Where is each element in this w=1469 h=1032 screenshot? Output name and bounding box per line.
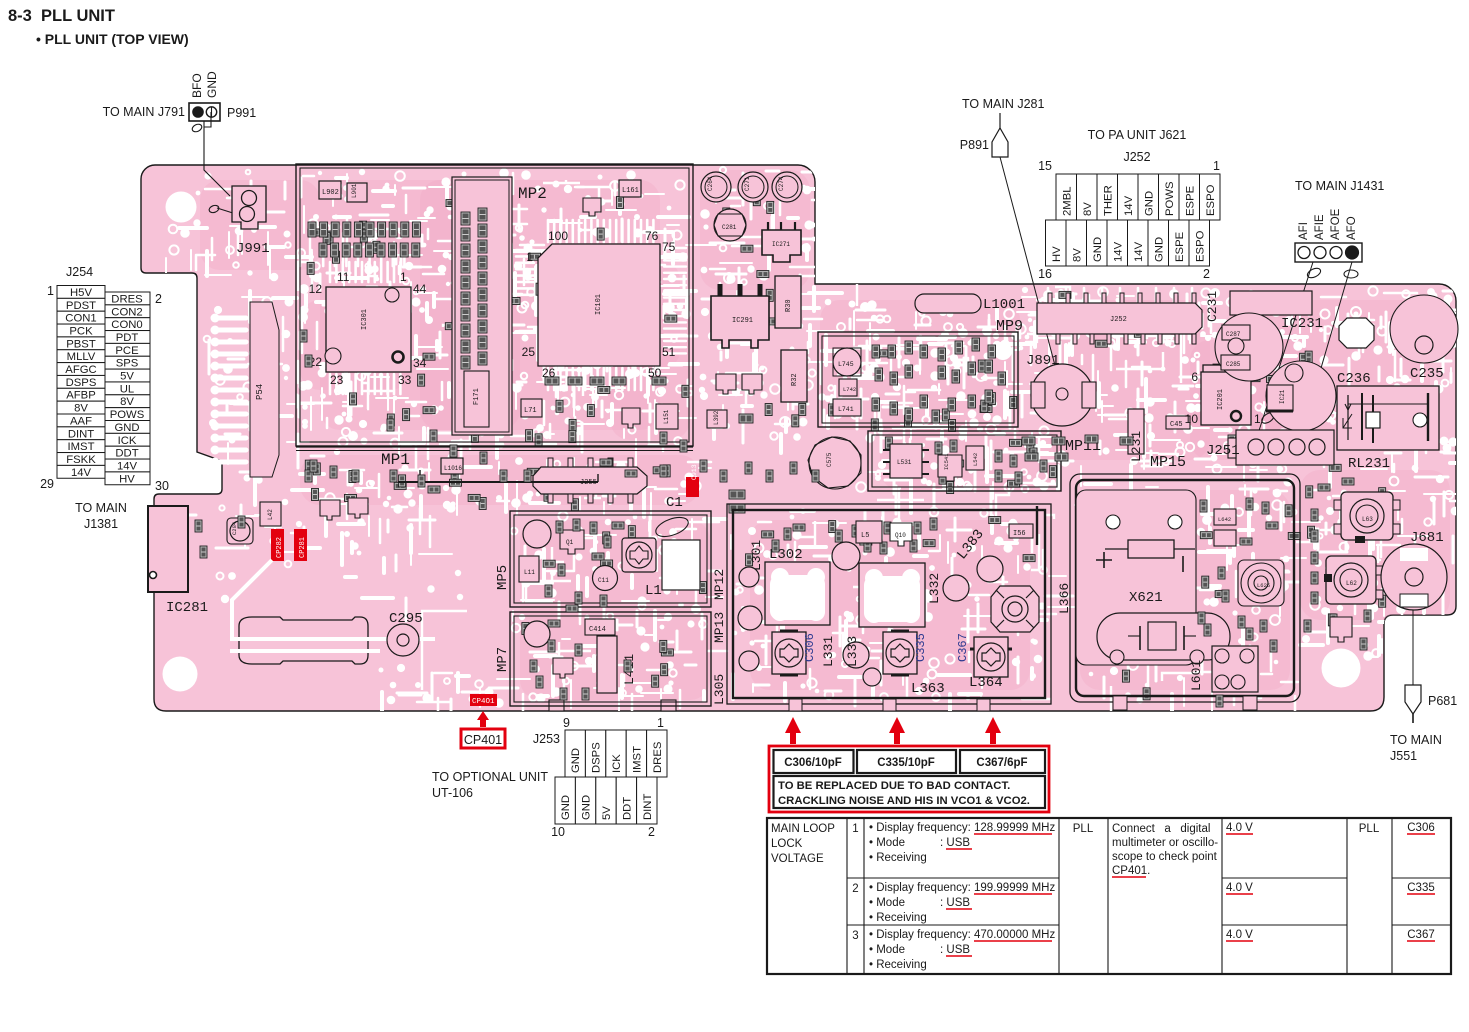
svg-text:C271: C271 — [744, 176, 751, 191]
svg-text:• Mode: • Mode — [869, 837, 905, 849]
svg-text:33: 33 — [398, 373, 412, 387]
svg-text:9: 9 — [563, 716, 570, 730]
svg-text:DSPS: DSPS — [591, 742, 603, 773]
svg-text:C367: C367 — [1407, 929, 1435, 941]
svg-text:R30: R30 — [785, 299, 793, 312]
svg-text:• Receiving: • Receiving — [869, 912, 927, 924]
svg-text:DDT: DDT — [115, 448, 138, 460]
svg-text:• Display frequency: 199.99999: • Display frequency: 199.99999 MHz — [869, 882, 1055, 894]
svg-text:MP13: MP13 — [712, 612, 727, 643]
svg-text:TO OPTIONAL UNIT: TO OPTIONAL UNIT — [432, 770, 548, 784]
svg-text:3: 3 — [852, 930, 858, 942]
svg-text:J551: J551 — [1390, 749, 1417, 763]
svg-text:8V: 8V — [120, 396, 134, 408]
svg-text:CP282: CP282 — [276, 537, 284, 558]
svg-text:FSKK: FSKK — [66, 454, 96, 466]
svg-text:15: 15 — [1038, 159, 1052, 173]
svg-text:C274: C274 — [778, 176, 785, 191]
svg-text:• Display frequency: 470.00000: • Display frequency: 470.00000 MHz — [869, 929, 1055, 941]
svg-text:1: 1 — [47, 284, 54, 298]
svg-text:IC271: IC271 — [772, 241, 790, 248]
svg-text:4.0 V: 4.0 V — [1226, 882, 1253, 894]
svg-text:1: 1 — [1254, 412, 1261, 426]
svg-text:IC21: IC21 — [1279, 389, 1286, 404]
svg-text:MP12: MP12 — [712, 569, 727, 600]
svg-text:BFO: BFO — [190, 73, 204, 98]
svg-text:29: 29 — [40, 477, 54, 491]
svg-text:IMST: IMST — [631, 746, 643, 773]
svg-text:PDST: PDST — [66, 300, 96, 312]
svg-text:P991: P991 — [227, 106, 256, 120]
svg-text:PDT: PDT — [116, 332, 139, 344]
svg-text:ESPO: ESPO — [1205, 184, 1217, 216]
svg-text:4.0 V: 4.0 V — [1226, 929, 1253, 941]
svg-text:LOCK: LOCK — [771, 838, 803, 850]
svg-text:76: 76 — [645, 229, 659, 243]
svg-text:2: 2 — [852, 883, 858, 895]
svg-text:AFI: AFI — [1298, 222, 1310, 240]
svg-text:14V: 14V — [1133, 241, 1145, 262]
svg-text:L63: L63 — [1362, 516, 1373, 523]
svg-text:P891: P891 — [960, 138, 989, 152]
svg-text:L151: L151 — [663, 409, 670, 424]
svg-text:C367: C367 — [956, 633, 970, 662]
svg-text:L364: L364 — [969, 675, 1003, 691]
svg-text:IC201: IC201 — [1217, 389, 1225, 410]
svg-text:GND: GND — [114, 422, 139, 434]
svg-text:C306: C306 — [1407, 822, 1435, 834]
svg-text:HV: HV — [119, 473, 135, 485]
svg-text:L901: L901 — [351, 183, 358, 198]
svg-text:• Mode: • Mode — [869, 944, 905, 956]
svg-text:• Display frequency: 128.99999: • Display frequency: 128.99999 MHz — [869, 822, 1055, 834]
svg-text:TO PA UNIT J621: TO PA UNIT J621 — [1088, 128, 1187, 142]
svg-text:L741: L741 — [838, 406, 854, 413]
svg-text:AFO: AFO — [1346, 216, 1358, 240]
svg-text:MP2: MP2 — [518, 185, 547, 203]
svg-text:L333: L333 — [845, 636, 860, 667]
svg-text:10: 10 — [1185, 412, 1199, 426]
svg-text:• Receiving: • Receiving — [869, 959, 927, 971]
svg-text:scope to check point: scope to check point — [1112, 851, 1218, 863]
svg-text:AFOE: AFOE — [1330, 208, 1342, 240]
svg-text:PCE: PCE — [115, 345, 139, 357]
svg-text:CP281: CP281 — [299, 537, 307, 558]
svg-text:23: 23 — [330, 373, 344, 387]
svg-text:MP1: MP1 — [381, 451, 410, 469]
svg-text:DSPS: DSPS — [66, 377, 97, 389]
svg-text:L363: L363 — [911, 681, 945, 697]
svg-text:GND: GND — [1092, 237, 1104, 262]
svg-text:GND: GND — [581, 795, 593, 820]
svg-text:L601: L601 — [1189, 660, 1204, 691]
svg-text:ICK: ICK — [118, 435, 137, 447]
svg-text:IC291: IC291 — [732, 317, 753, 325]
svg-text:CP401.: CP401. — [1112, 865, 1150, 877]
svg-text:14V: 14V — [1112, 241, 1124, 262]
svg-text:DRES: DRES — [652, 741, 664, 773]
svg-text:TO MAIN J1431: TO MAIN J1431 — [1295, 179, 1384, 193]
svg-text:30: 30 — [155, 479, 169, 493]
svg-text:multimeter or oscillo-: multimeter or oscillo- — [1112, 837, 1218, 849]
svg-text:RL231: RL231 — [1348, 456, 1390, 472]
svg-text:L392: L392 — [713, 410, 720, 425]
svg-text:ESPO: ESPO — [1194, 230, 1206, 262]
svg-text:J253: J253 — [533, 732, 560, 746]
svg-text:10: 10 — [551, 825, 565, 839]
svg-text:IC101: IC101 — [595, 294, 603, 315]
svg-text:5V: 5V — [120, 371, 134, 383]
svg-text:L71: L71 — [524, 407, 537, 415]
svg-text:AFGC: AFGC — [65, 364, 96, 376]
svg-text:R32: R32 — [791, 373, 799, 386]
svg-text:P681: P681 — [1428, 694, 1457, 708]
svg-text:J1381: J1381 — [84, 517, 118, 531]
svg-text:: USB: : USB — [940, 837, 970, 849]
svg-text:C335: C335 — [1407, 882, 1435, 894]
svg-text:ESPE: ESPE — [1184, 185, 1196, 216]
svg-text:MAIN LOOP: MAIN LOOP — [771, 823, 835, 835]
svg-text:L42: L42 — [267, 509, 274, 520]
svg-text:L531: L531 — [897, 459, 912, 466]
svg-text:UL: UL — [120, 383, 134, 395]
svg-text:POWS: POWS — [1164, 181, 1176, 216]
svg-text:PLL: PLL — [1073, 823, 1094, 835]
svg-text:ICK: ICK — [611, 754, 623, 773]
svg-text:12: 12 — [309, 282, 323, 296]
svg-text:4.0 V: 4.0 V — [1226, 822, 1253, 834]
svg-text:• PLL UNIT (TOP VIEW): • PLL UNIT (TOP VIEW) — [36, 31, 189, 47]
svg-text:14V: 14V — [117, 460, 138, 472]
svg-text:IC281: IC281 — [166, 600, 208, 616]
svg-text:J252: J252 — [1123, 150, 1150, 164]
svg-text:CON1: CON1 — [65, 313, 96, 325]
svg-text:AAF: AAF — [70, 415, 92, 427]
svg-text:L1001: L1001 — [983, 297, 1025, 313]
svg-text:C11: C11 — [598, 577, 609, 584]
svg-text:POWS: POWS — [110, 409, 145, 421]
svg-text:CP401: CP401 — [464, 733, 502, 747]
svg-text:GND: GND — [205, 71, 219, 98]
svg-text:MP7: MP7 — [495, 647, 511, 672]
svg-text:MP15: MP15 — [1150, 454, 1186, 471]
svg-text:8-3 PLL UNIT: 8-3 PLL UNIT — [8, 7, 115, 25]
svg-text:TO MAIN: TO MAIN — [1390, 733, 1442, 747]
svg-text:• Receiving: • Receiving — [869, 852, 927, 864]
svg-text:J251: J251 — [1206, 443, 1240, 459]
svg-text:11: 11 — [337, 270, 350, 284]
svg-text:C335/10pF: C335/10pF — [877, 757, 935, 769]
svg-text:DINT: DINT — [642, 794, 654, 820]
svg-text:2: 2 — [155, 292, 162, 306]
svg-text:HV: HV — [1051, 246, 1063, 262]
svg-text:C1: C1 — [666, 495, 683, 511]
svg-text:L305: L305 — [712, 674, 727, 705]
svg-text:VOLTAGE: VOLTAGE — [771, 853, 824, 865]
svg-text:L161: L161 — [622, 187, 639, 195]
svg-text:8V: 8V — [74, 403, 88, 415]
svg-text:L1: L1 — [645, 583, 662, 599]
svg-text:1: 1 — [657, 716, 664, 730]
svg-text:AFBP: AFBP — [66, 390, 96, 402]
svg-text:Q1: Q1 — [566, 539, 574, 546]
svg-text:MP9: MP9 — [996, 318, 1023, 335]
svg-text:25: 25 — [522, 345, 536, 359]
svg-text:14V: 14V — [1123, 195, 1135, 216]
svg-text:L1016: L1016 — [444, 465, 462, 472]
svg-text:2: 2 — [1203, 267, 1210, 281]
svg-text:: USB: : USB — [940, 897, 970, 909]
svg-text:TO MAIN: TO MAIN — [75, 501, 127, 515]
svg-text:TO MAIN J791: TO MAIN J791 — [103, 105, 185, 119]
svg-text:UT-106: UT-106 — [432, 786, 473, 800]
svg-text:IC301: IC301 — [361, 309, 369, 330]
svg-text:6: 6 — [1191, 370, 1198, 384]
svg-text:I56: I56 — [1013, 530, 1026, 538]
svg-text:TO MAIN J281: TO MAIN J281 — [962, 97, 1044, 111]
svg-text:GND: GND — [1153, 237, 1165, 262]
svg-text:C287: C287 — [1226, 331, 1241, 338]
svg-text:C236: C236 — [1337, 371, 1371, 387]
svg-text:THER: THER — [1102, 185, 1114, 216]
svg-text:GND: GND — [560, 795, 572, 820]
svg-text:CRACKLING NOISE AND HIS IN VCO: CRACKLING NOISE AND HIS IN VCO1 & VCO2. — [778, 795, 1030, 807]
svg-text:GND: GND — [1143, 191, 1155, 216]
svg-text:L301: L301 — [749, 540, 764, 571]
svg-text:34: 34 — [413, 356, 427, 370]
svg-text:ESPE: ESPE — [1174, 231, 1186, 262]
svg-text:MP5: MP5 — [495, 565, 511, 590]
svg-text:L11: L11 — [524, 569, 535, 576]
svg-text:X621: X621 — [1129, 590, 1163, 606]
svg-text:CON2: CON2 — [111, 306, 142, 318]
svg-text:C264: C264 — [707, 176, 714, 191]
svg-text:C414: C414 — [589, 626, 606, 634]
svg-text:5V: 5V — [601, 806, 613, 820]
svg-text:C235: C235 — [1410, 366, 1444, 382]
svg-text:8V: 8V — [1082, 202, 1094, 216]
svg-text:• Mode: • Mode — [869, 897, 905, 909]
svg-text:J991: J991 — [236, 241, 270, 257]
svg-text:PBST: PBST — [66, 338, 96, 350]
svg-text:L331: L331 — [821, 636, 836, 667]
svg-text:TO BE REPLACED DUE TO BAD CONT: TO BE REPLACED DUE TO BAD CONTACT. — [778, 780, 1010, 792]
svg-text:51: 51 — [662, 345, 676, 359]
svg-text:L332: L332 — [927, 573, 942, 604]
svg-text:CP4O1: CP4O1 — [472, 698, 495, 706]
svg-text:2: 2 — [648, 825, 655, 839]
svg-text:Connect a digital: Connect a digital — [1112, 823, 1210, 835]
svg-text:H5V: H5V — [70, 287, 92, 299]
svg-text:C285: C285 — [1226, 361, 1241, 368]
svg-text:1: 1 — [400, 270, 407, 284]
svg-text:Q10: Q10 — [895, 532, 906, 539]
svg-text:DINT: DINT — [68, 428, 94, 440]
svg-text:75: 75 — [662, 240, 676, 254]
svg-text:C281: C281 — [722, 224, 737, 231]
svg-text:IC231: IC231 — [1281, 316, 1323, 332]
svg-text:MLLV: MLLV — [67, 351, 96, 363]
svg-text:C367/6pF: C367/6pF — [976, 757, 1027, 769]
svg-text:C335: C335 — [914, 633, 928, 662]
svg-text:14V: 14V — [71, 467, 92, 479]
svg-text:L62: L62 — [1346, 580, 1357, 587]
svg-text:IMST: IMST — [68, 441, 95, 453]
svg-text:L642: L642 — [1218, 516, 1231, 523]
svg-text:DRES: DRES — [111, 293, 143, 305]
svg-text:IC541: IC541 — [943, 453, 950, 470]
svg-text:CON0: CON0 — [111, 319, 142, 331]
svg-text:J254: J254 — [66, 265, 93, 279]
svg-text:1: 1 — [852, 823, 858, 835]
svg-text:C913: C913 — [691, 464, 698, 480]
svg-text:C284: C284 — [231, 521, 238, 535]
svg-text:PCK: PCK — [69, 325, 93, 337]
svg-text:AFIE: AFIE — [1314, 214, 1326, 240]
svg-text:L231: L231 — [1129, 431, 1144, 462]
svg-text:44: 44 — [413, 282, 427, 296]
svg-text:C306/10pF: C306/10pF — [784, 757, 842, 769]
svg-text:L745: L745 — [838, 361, 854, 368]
svg-text:P54: P54 — [255, 384, 265, 400]
svg-text:100: 100 — [548, 229, 568, 243]
svg-text:1: 1 — [526, 250, 533, 264]
svg-text:L625: L625 — [1257, 582, 1270, 589]
svg-text:16: 16 — [1038, 267, 1052, 281]
svg-text:C45: C45 — [1170, 421, 1183, 429]
svg-text:PLL: PLL — [1359, 823, 1380, 835]
svg-text:C575: C575 — [826, 452, 833, 467]
svg-text:C231: C231 — [1205, 291, 1220, 322]
svg-text:J252: J252 — [1110, 316, 1127, 324]
svg-text:GND: GND — [570, 748, 582, 773]
svg-text:L5: L5 — [861, 532, 869, 540]
svg-text:DDT: DDT — [621, 797, 633, 820]
svg-text:F171: F171 — [473, 388, 481, 405]
svg-text:8V: 8V — [1071, 248, 1083, 262]
svg-text:: USB: : USB — [940, 944, 970, 956]
svg-text:2MBL: 2MBL — [1061, 186, 1073, 216]
svg-text:C306: C306 — [803, 633, 817, 662]
svg-text:L902: L902 — [322, 189, 339, 197]
svg-text:L542: L542 — [972, 453, 979, 466]
svg-text:1: 1 — [1213, 159, 1220, 173]
svg-text:L742: L742 — [843, 386, 856, 393]
svg-text:SPS: SPS — [116, 358, 139, 370]
